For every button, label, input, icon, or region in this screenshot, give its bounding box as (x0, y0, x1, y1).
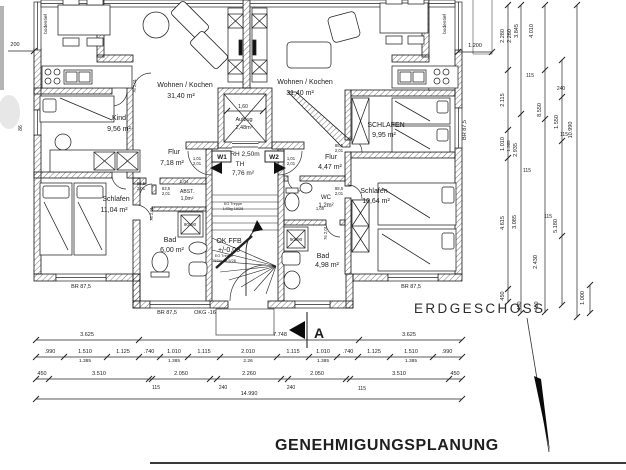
plan-label: 115 (526, 73, 534, 79)
toilet-bad-right (284, 271, 300, 289)
window-top-2 (104, 0, 243, 7)
plan-label: .740 (343, 349, 354, 355)
plan-label: 1.385 (506, 140, 511, 152)
dim-chain (518, 2, 524, 316)
drawing-type-title: GENEHMIGUNGSPLANUNG (275, 437, 499, 455)
plan-label: 2,48m² (235, 125, 252, 131)
plan-label: 1,60 (238, 104, 248, 110)
plan-label: 2,01 (335, 148, 344, 153)
titleblock-border (150, 462, 626, 464)
plan-label: 7.748 (273, 332, 287, 338)
tv-left (239, 40, 242, 55)
plan-label: 1,0m² (181, 196, 194, 202)
plan-label: 3.625 (80, 332, 94, 338)
plan-label: 115 (560, 132, 568, 138)
plan-label: 3.085 (512, 215, 518, 229)
door-arc-bad-right (326, 223, 340, 237)
plan-label: bodentief (442, 13, 448, 33)
plan-label: 240 (287, 385, 296, 391)
plan-label: 9,56 m² (107, 126, 131, 133)
plan-label: 76 2,01 (132, 78, 137, 93)
armchair-right (327, 11, 361, 43)
tv-right (253, 40, 256, 55)
plan-label: 5.180 (553, 219, 559, 233)
plan-label: .990 (45, 349, 56, 355)
plan-label: 31,40 m² (286, 90, 314, 97)
plan-label: 2.010 (241, 349, 255, 355)
plan-label: 2.050 (174, 371, 188, 377)
plan-label: 10.990 (568, 122, 574, 139)
plan-label: 1.000 (580, 291, 586, 305)
plan-label: BR 87,5 (462, 120, 468, 140)
window-bottom-bath (295, 301, 330, 308)
plan-label: 1.125 (116, 349, 130, 355)
plan-label: Flur (168, 149, 181, 156)
plan-label: 2.260 (242, 371, 256, 377)
plan-label: 2.115 (500, 93, 506, 106)
plan-label: 7,18 m² (160, 160, 184, 167)
plan-label: 2,01 (162, 191, 171, 196)
plan-label: 4.010 (529, 24, 535, 38)
plan-label: 240 (557, 86, 566, 92)
plan-label: 3.625 (402, 332, 416, 338)
sink-bad-right (282, 252, 300, 265)
plan-label: W2 (269, 154, 279, 161)
plan-label: SCHLAFEN (367, 122, 404, 129)
plan-label: 11,04 m² (100, 207, 128, 214)
plan-label: 2,01 (137, 186, 146, 191)
dim-chain (559, 57, 565, 308)
plan-label: 14Stg 18/28 (223, 207, 243, 211)
plan-label: 1.125 (367, 349, 381, 355)
window-right-mid (455, 108, 462, 148)
window-right-top (455, 2, 462, 50)
plan-label: 1.115 (286, 349, 299, 355)
plan-label: .990 (442, 349, 453, 355)
plan-label: 2,01 (287, 161, 296, 166)
plan-label: KG Treppe (224, 202, 242, 206)
plan-label: ABST. (180, 189, 194, 195)
plan-label: 1.510 (404, 349, 418, 355)
plan-label: 86 (18, 125, 24, 131)
toilet-tank-wc (286, 188, 298, 193)
plan-label: 1,00 (316, 206, 325, 211)
plan-label: 1.550 (554, 115, 560, 129)
plan-label: 115 (152, 385, 160, 391)
plan-label: EG Treppe (215, 254, 233, 258)
plan-label: 6,00 m² (160, 247, 184, 254)
plan-label: WC (321, 195, 332, 201)
dim-chain (505, 2, 511, 305)
section-marker-a (289, 312, 307, 348)
plan-label: 1.385 (317, 358, 329, 364)
plan-label: A (314, 325, 324, 341)
plan-label: OK FFB (216, 238, 242, 245)
plan-label: 90x90 (184, 222, 197, 227)
plan-label: 1.010 (316, 349, 330, 355)
plan-label: Schlafen (360, 188, 387, 195)
plan-label: 1.385 (79, 358, 91, 364)
dim-chain (574, 2, 580, 320)
plan-label: BR 87,5 (71, 284, 91, 290)
toilet-left (152, 252, 168, 272)
plan-label: Aufzug (235, 117, 252, 123)
plan-label: 4,47 m² (318, 164, 342, 171)
bidet-left (189, 262, 207, 276)
plan-label: 450 (500, 291, 506, 300)
entry-landing (216, 309, 274, 335)
floorplan-drawing: Wohnen / Kochen31,40 m²Wohnen / Kochen31… (0, 0, 626, 470)
plan-label: .740 (144, 349, 155, 355)
window-bottom-right (388, 274, 438, 281)
toilet-wc (285, 193, 299, 211)
plan-label: 2.280 (500, 29, 506, 43)
window-top-4 (429, 0, 455, 7)
plan-label: 10,64 m² (362, 198, 390, 205)
plan-label: 2,01 (193, 161, 202, 166)
plan-label: bodentief (43, 13, 49, 33)
north-arrow (527, 318, 550, 452)
plan-label: 14.990 (241, 391, 258, 397)
scan-artifacts (0, 6, 20, 129)
plan-label: TH (236, 161, 245, 168)
dim-chain (542, 2, 548, 315)
plan-label: 1.200 (468, 43, 482, 49)
dim-chain (33, 337, 465, 343)
window-left-top (34, 2, 41, 50)
plan-label: 1.385 (168, 358, 180, 364)
dining-table-right (380, 3, 428, 33)
plan-label: 1.010 (167, 349, 181, 355)
floorplan-page: Wohnen / Kochen31,40 m²Wohnen / Kochen31… (0, 0, 626, 470)
plan-label: 2.26 (243, 358, 253, 364)
plan-label: Wohnen / Kochen (277, 79, 333, 86)
plan-label: 115 (523, 168, 531, 174)
plan-label: Flur (325, 154, 338, 161)
door-arc-schlafen-left (112, 175, 126, 189)
plan-label: +/-0,00 (218, 247, 240, 254)
plan-label: 240 (219, 385, 228, 391)
plan-label: 2.050 (310, 371, 324, 377)
plan-label: 90x90 (290, 237, 303, 242)
plan-label: 8.550 (537, 103, 543, 117)
plan-label: 9,95 m² (372, 132, 396, 139)
plan-label: 115 (544, 214, 552, 220)
plan-label: 76 2,01 (149, 206, 154, 221)
plan-label: 7,76 m² (232, 170, 255, 177)
plan-label: 31,40 m² (167, 93, 195, 100)
plan-label: 450 (450, 371, 459, 377)
plan-label: 115 (358, 386, 366, 392)
dim-chain (8, 48, 37, 54)
plan-label: 2.260 (507, 29, 513, 43)
plan-label: 4.615 (500, 216, 506, 230)
plan-label: 1.115 (197, 349, 210, 355)
toilet-tank-left (151, 272, 169, 277)
stair-direction-arrow-icon (252, 220, 263, 232)
dining-table-left (58, 5, 110, 35)
plan-label: 1.510 (78, 349, 92, 355)
plan-label: 4,98 m² (315, 262, 339, 269)
plan-label: BR 87,5 (157, 310, 177, 316)
window-bottom-center (150, 301, 210, 308)
plan-label: BR 87,5 (401, 284, 421, 290)
plan-label: 3.510 (92, 371, 106, 377)
plan-label: 450 (37, 371, 46, 377)
plan-label: 76 2,01 (323, 225, 328, 240)
sink-wc (300, 183, 312, 193)
plan-label: 15Stg 18,5/28 (212, 259, 236, 263)
plan-label: 2.935 (513, 143, 519, 157)
plan-label: 3.510 (392, 371, 406, 377)
plan-label: RH 2,50m (230, 151, 259, 158)
plan-label: OKG -16 (194, 310, 216, 316)
plan-label: Kind (112, 115, 126, 122)
plan-label: W1 (217, 154, 227, 161)
window-bottom-left (56, 274, 106, 281)
plan-label: 3.845 (514, 24, 520, 38)
fixtures (151, 183, 312, 289)
floor-title: ERDGESCHOSS (414, 301, 545, 316)
plan-label: Bad (317, 253, 330, 260)
plan-label: 1,04 (180, 179, 189, 184)
plan-label: 200 (10, 42, 19, 48)
plan-label: 2,01 (335, 191, 344, 196)
plan-label: Schlafen (102, 196, 129, 203)
sink-bad-left (189, 242, 207, 254)
sofa-right (287, 42, 331, 68)
plan-label: Wohnen / Kochen (157, 82, 213, 89)
round-table-left (143, 12, 169, 38)
dim-chain (587, 282, 593, 316)
plan-label: 2.430 (533, 255, 539, 269)
plan-label: Bad (164, 237, 177, 244)
plan-label: 1.385 (405, 358, 417, 364)
diagonal-wall (288, 92, 350, 147)
chair-kind (55, 134, 71, 150)
